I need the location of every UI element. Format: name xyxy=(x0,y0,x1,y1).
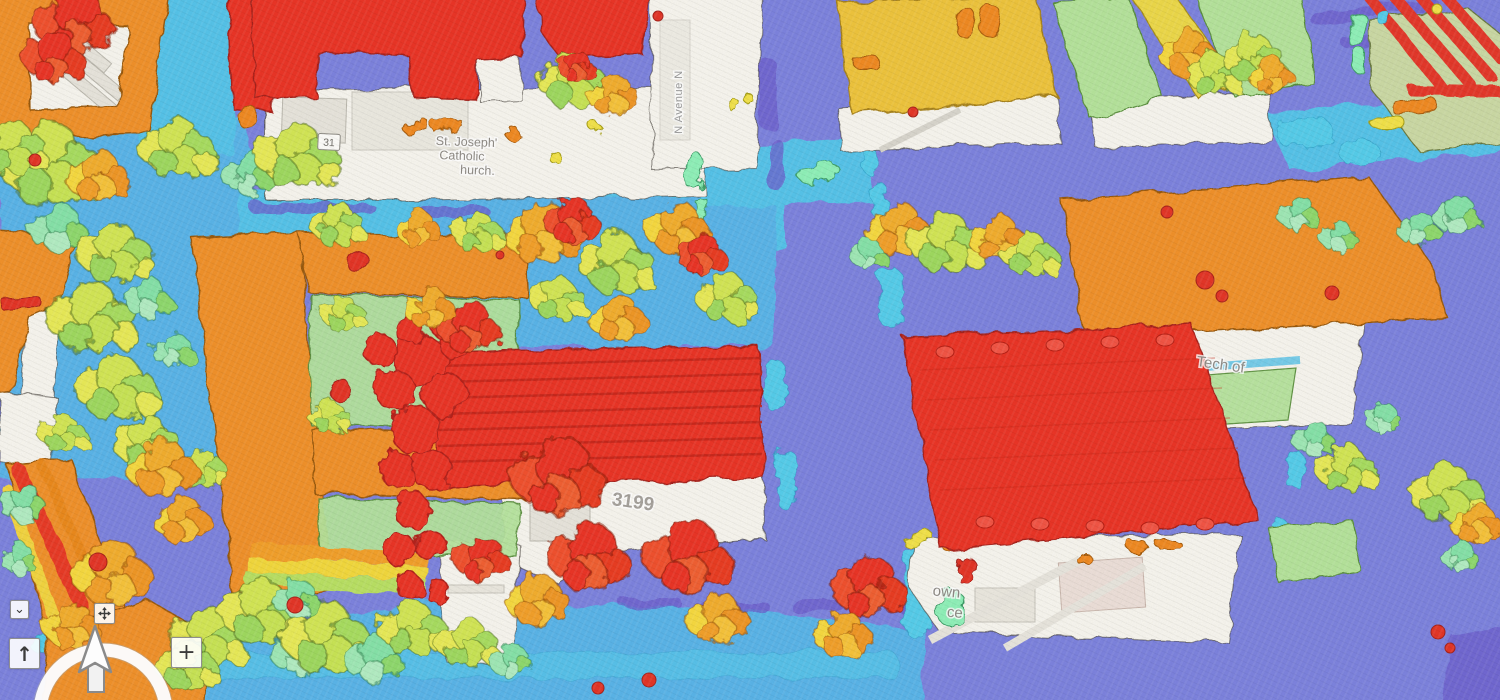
point-grain-overlay xyxy=(0,0,1500,700)
arrow-up-icon: ↑ xyxy=(16,642,33,666)
pan-up-button[interactable]: ↑ xyxy=(9,638,40,669)
chevron-down-icon: ⌄ xyxy=(14,603,25,616)
plus-icon: + xyxy=(177,640,195,665)
zoom-in-button[interactable]: + xyxy=(171,637,202,668)
pan-arrows-icon xyxy=(98,607,111,620)
collapse-panel-button[interactable]: ⌄ xyxy=(10,600,29,619)
point-cloud-scene[interactable]: St. Joseph' Catholic hurch. N Avenue N 3… xyxy=(0,0,1500,700)
lidar-map-viewport[interactable]: St. Joseph' Catholic hurch. N Avenue N 3… xyxy=(0,0,1500,700)
pan-mode-button[interactable] xyxy=(94,603,115,624)
